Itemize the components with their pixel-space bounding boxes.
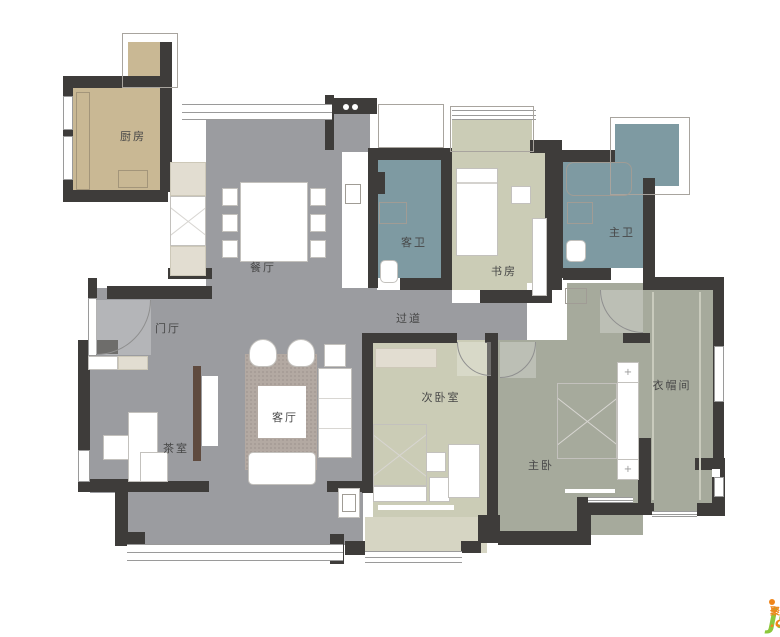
armchair [249, 339, 277, 367]
dining-chair [310, 240, 326, 258]
room-label-kitchen: 厨房 [120, 128, 146, 144]
balcony-outline [450, 106, 534, 152]
balcony-outline [378, 104, 444, 148]
wall-segment [400, 278, 452, 290]
tv-panel [202, 376, 218, 446]
room-label-tea-room: 茶室 [163, 440, 189, 456]
entry-cabinet [88, 356, 118, 370]
wall-segment [643, 277, 724, 290]
master-bed [557, 383, 617, 459]
wall-segment [127, 481, 209, 492]
master-door-arc [500, 342, 536, 378]
tea-cabinet [140, 452, 168, 482]
kitchen-stove [118, 170, 148, 188]
study-bed-pillow-line [457, 182, 497, 184]
wall-segment [638, 438, 651, 513]
room-label-living-room: 客厅 [272, 409, 298, 425]
closet-shelf-line [699, 292, 701, 500]
room-label-master-bedroom: 主卧 [528, 457, 554, 473]
side-table [324, 344, 346, 367]
closet-shelf-line [652, 292, 654, 500]
laundry-unit [345, 184, 361, 204]
dining-chair [222, 214, 238, 232]
pantry-shelf-top [170, 162, 206, 196]
suite-shoe-cabinet [565, 288, 587, 304]
heater-dot [343, 104, 349, 110]
window [63, 96, 73, 130]
wall-segment [345, 541, 365, 555]
tv-shelf [193, 366, 201, 461]
pantry-shelf-bottom [170, 246, 206, 276]
room-label-guest-bathroom: 客卫 [401, 234, 427, 250]
study-cabinet [532, 218, 547, 296]
master-bathtub [566, 162, 632, 196]
wall-segment [461, 541, 481, 553]
wall-segment [88, 278, 97, 300]
closet-fixture [712, 469, 720, 477]
room-label-hallway: 过道 [396, 310, 422, 326]
room-label-master-bathroom: 主卫 [609, 224, 635, 240]
watermark-right: 聚设汇 .com [770, 603, 780, 633]
bedroom2-bed [373, 424, 427, 486]
wall-segment [697, 503, 725, 516]
wall-segment [441, 148, 452, 290]
window [63, 136, 73, 180]
floor-patch [452, 290, 480, 303]
window [588, 497, 633, 503]
wall-segment [563, 268, 611, 280]
closet-door-arc [600, 290, 643, 333]
balcony-basin-bowl [342, 494, 356, 512]
kitchen-counter [76, 92, 90, 190]
sofa [318, 368, 352, 458]
wall-segment [362, 333, 457, 343]
window [182, 104, 332, 120]
wall-segment [63, 190, 168, 202]
room-label-second-bedroom: 次卧室 [422, 389, 461, 405]
wall-segment [368, 148, 448, 160]
wall-segment [362, 333, 373, 493]
window [714, 477, 724, 497]
balcony-outline [122, 33, 178, 88]
dining-chair [310, 214, 326, 232]
living-balcony-floor [127, 493, 363, 545]
floor-patch [611, 268, 643, 280]
room-label-entrance-hall: 门厅 [155, 320, 181, 336]
window [78, 450, 90, 482]
window [127, 544, 343, 561]
study-desk [511, 186, 531, 204]
tea-chair [103, 435, 129, 460]
wall-segment [107, 286, 212, 299]
entry-door-arc [96, 300, 151, 355]
master-bench [565, 489, 615, 493]
bedroom2-pillow [373, 486, 427, 502]
wall-segment [498, 531, 584, 545]
armchair [287, 339, 315, 367]
floor-plan: ++厨房餐厅客卫书房主卫过道门厅客厅茶室次卧室主卧衣帽间 jsheh 聚设汇 .… [0, 0, 780, 637]
floor-patch [342, 152, 368, 285]
dining-chair [222, 240, 238, 258]
bedroom2-wardrobe [375, 348, 437, 368]
dining-table [240, 182, 308, 262]
master-nightstand: + [617, 362, 639, 383]
sofa-bench [248, 452, 316, 485]
room-label-walk-in-closet: 衣帽间 [653, 377, 692, 393]
dining-chair [222, 188, 238, 206]
wall-segment [553, 152, 563, 278]
window [652, 511, 697, 517]
bedroom2-desk [448, 444, 480, 498]
window [365, 551, 462, 563]
wall-segment [577, 503, 654, 515]
guest-bath-shelf [377, 172, 385, 194]
master-washbasin [567, 202, 593, 224]
second-bedroom-door-arc [457, 342, 491, 376]
heater-dot [352, 104, 358, 110]
room-label-study: 书房 [491, 263, 517, 279]
room-label-dining-room: 餐厅 [250, 259, 276, 275]
bedroom2-chair [426, 452, 446, 472]
wall-segment [623, 333, 650, 343]
dining-chair [310, 188, 326, 206]
heater-alcove-floor [334, 112, 370, 154]
master-toilet [566, 240, 586, 262]
guest-washbasin [379, 202, 407, 224]
pantry-x-cabinet [170, 196, 206, 246]
bedroom2-window-sill [378, 505, 454, 510]
window [714, 346, 724, 402]
bedroom2-nightstand [429, 477, 450, 502]
entry-cabinet [118, 356, 148, 370]
master-nightstand: + [617, 459, 639, 480]
watermark-tld-text: .com [770, 616, 780, 631]
guest-toilet [380, 260, 398, 283]
